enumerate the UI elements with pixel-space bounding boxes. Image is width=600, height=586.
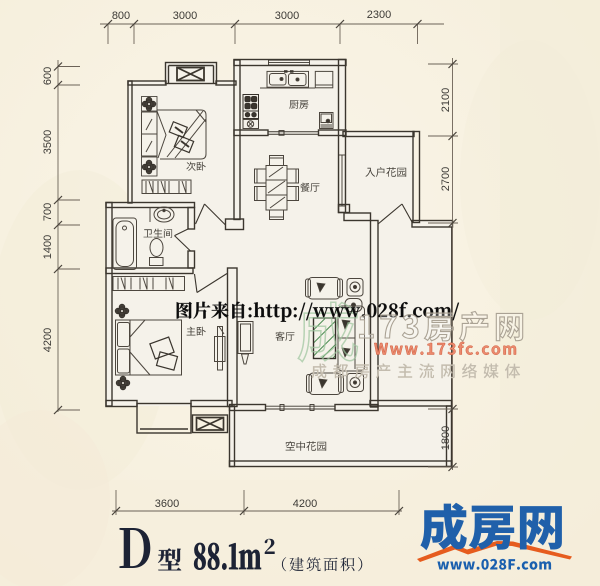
svg-text:3000: 3000 xyxy=(173,10,197,22)
svg-text:2700: 2700 xyxy=(440,167,452,191)
svg-text:3000: 3000 xyxy=(275,10,299,22)
svg-text:3600: 3600 xyxy=(155,498,179,510)
svg-text:4200: 4200 xyxy=(42,328,54,352)
svg-text:600: 600 xyxy=(42,67,54,85)
svg-text:1800: 1800 xyxy=(440,426,452,450)
svg-text:800: 800 xyxy=(112,10,130,22)
svg-text:1400: 1400 xyxy=(42,235,54,259)
svg-text:4200: 4200 xyxy=(293,498,317,510)
svg-text:700: 700 xyxy=(42,203,54,221)
svg-text:2300: 2300 xyxy=(367,9,391,21)
svg-text:2100: 2100 xyxy=(440,88,452,112)
svg-text:3500: 3500 xyxy=(42,130,54,154)
